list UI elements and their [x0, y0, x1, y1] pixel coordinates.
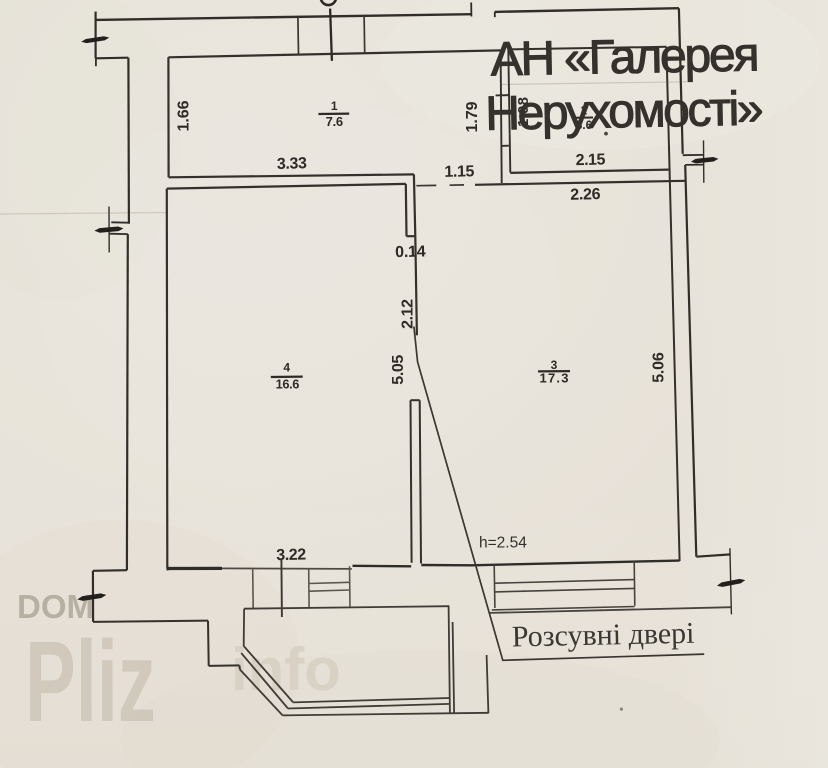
svg-text:Нерухомості»: Нерухомості»: [485, 82, 763, 140]
svg-text:2.12: 2.12: [399, 299, 416, 329]
svg-text:16.6: 16.6: [276, 376, 300, 391]
svg-text:h=2.54: h=2.54: [479, 535, 527, 552]
svg-text:1: 1: [331, 99, 338, 113]
svg-text:Розсувні двері: Розсувні двері: [511, 617, 694, 654]
svg-text:2.15: 2.15: [575, 151, 605, 169]
svg-text:0.14: 0.14: [395, 243, 426, 261]
svg-text:АН «Галерея: АН «Галерея: [490, 28, 758, 86]
svg-text:1.66: 1.66: [176, 100, 193, 131]
svg-text:5.06: 5.06: [651, 352, 668, 383]
svg-text:2.26: 2.26: [570, 186, 601, 204]
svg-text:3.22: 3.22: [276, 546, 306, 564]
svg-text:1.79: 1.79: [464, 101, 481, 132]
svg-text:7.6: 7.6: [326, 114, 344, 129]
svg-text:1.15: 1.15: [444, 163, 474, 181]
svg-text:Pliz: Pliz: [25, 618, 156, 746]
svg-text:4: 4: [283, 361, 290, 375]
svg-text:5.05: 5.05: [390, 355, 407, 385]
svg-text:3.33: 3.33: [277, 155, 308, 173]
svg-text:17.3: 17.3: [540, 371, 569, 386]
